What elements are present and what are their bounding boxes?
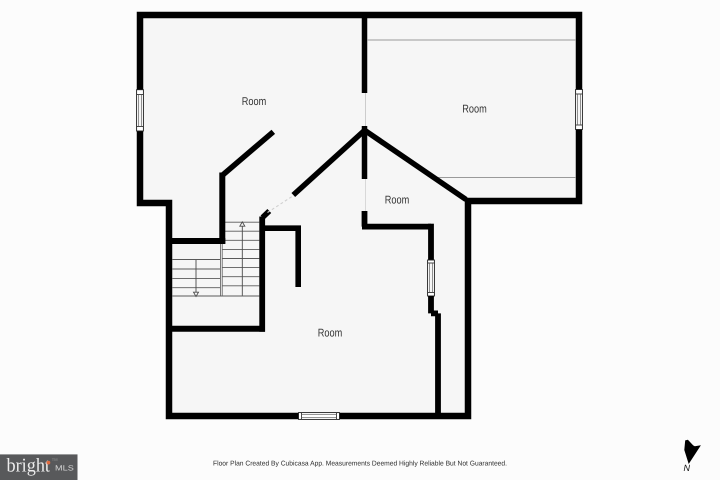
svg-text:bright: bright	[7, 455, 51, 476]
svg-text:TM: TM	[52, 457, 58, 462]
svg-text:Floor Plan Created By Cubicasa: Floor Plan Created By Cubicasa App. Meas…	[213, 460, 507, 467]
svg-text:Room: Room	[242, 96, 267, 108]
svg-text:Room: Room	[318, 327, 343, 339]
svg-text:N: N	[684, 463, 691, 473]
svg-text:Room: Room	[385, 195, 410, 207]
svg-text:Room: Room	[462, 103, 487, 115]
svg-text:MLS: MLS	[55, 464, 74, 473]
